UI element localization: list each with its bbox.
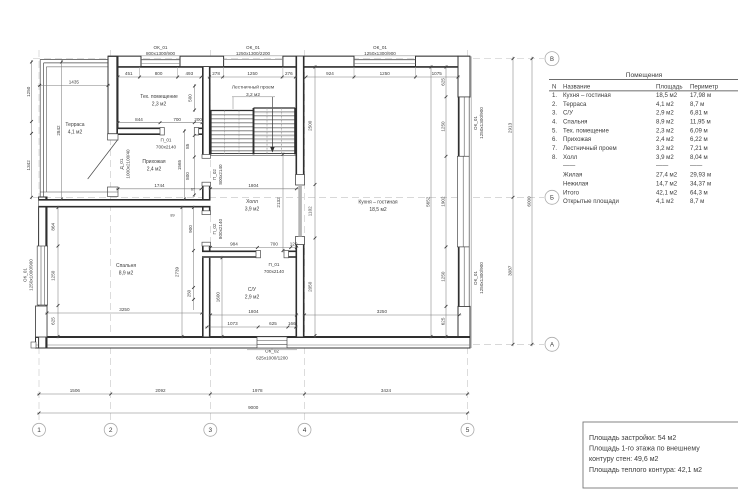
svg-text:Холл: Холл bbox=[563, 154, 578, 161]
svg-text:3: 3 bbox=[208, 427, 212, 434]
svg-text:1073: 1073 bbox=[227, 321, 238, 326]
svg-text:ОК_01: ОК_01 bbox=[154, 45, 168, 50]
svg-text:89: 89 bbox=[170, 214, 174, 218]
svg-text:Открытые площади: Открытые площади bbox=[563, 198, 619, 205]
svg-text:1250х1000/900: 1250х1000/900 bbox=[29, 259, 34, 291]
svg-text:6,81 м: 6,81 м bbox=[690, 110, 708, 117]
svg-text:900: 900 bbox=[188, 225, 193, 233]
svg-text:1250: 1250 bbox=[440, 121, 445, 132]
svg-text:250: 250 bbox=[187, 289, 192, 297]
svg-text:2132: 2132 bbox=[276, 197, 281, 208]
svg-text:1804: 1804 bbox=[248, 183, 259, 188]
svg-text:4,1 м2: 4,1 м2 bbox=[68, 130, 83, 136]
svg-text:Прихожая: Прихожая bbox=[142, 159, 165, 165]
svg-text:1902: 1902 bbox=[440, 196, 445, 207]
svg-text:2,3 м2: 2,3 м2 bbox=[152, 102, 167, 108]
svg-text:3,2 м2: 3,2 м2 bbox=[246, 92, 260, 98]
svg-text:контуру стен: 49,6 м2: контуру стен: 49,6 м2 bbox=[589, 456, 659, 463]
svg-text:2,3 м2: 2,3 м2 bbox=[656, 127, 674, 134]
svg-text:В: В bbox=[550, 57, 554, 63]
svg-text:2913: 2913 bbox=[507, 122, 512, 133]
svg-text:5.: 5. bbox=[552, 127, 557, 134]
svg-text:34,37 м: 34,37 м bbox=[690, 180, 711, 187]
svg-text:166: 166 bbox=[288, 321, 296, 326]
svg-text:8,7 м: 8,7 м bbox=[690, 101, 704, 108]
svg-text:——: —— bbox=[690, 163, 703, 170]
svg-text:Площадь: Площадь bbox=[656, 84, 683, 91]
svg-text:Прихожая: Прихожая bbox=[563, 136, 591, 143]
svg-text:7,21 м: 7,21 м bbox=[690, 145, 708, 152]
svg-text:800: 800 bbox=[185, 172, 190, 180]
svg-text:1435: 1435 bbox=[69, 80, 80, 85]
svg-text:3,2 м2: 3,2 м2 bbox=[656, 145, 674, 152]
svg-text:1250х1300/2200: 1250х1300/2200 bbox=[236, 51, 271, 56]
svg-text:ОК_01: ОК_01 bbox=[373, 45, 387, 50]
svg-text:17,98 м: 17,98 м bbox=[690, 92, 711, 99]
svg-text:Лестничный проем: Лестничный проем bbox=[563, 145, 617, 152]
svg-text:64,3 м: 64,3 м bbox=[690, 189, 708, 196]
svg-text:6,09 м: 6,09 м bbox=[690, 127, 708, 134]
svg-text:4: 4 bbox=[303, 427, 307, 434]
svg-text:18,5 м2: 18,5 м2 bbox=[369, 207, 387, 213]
svg-text:6.: 6. bbox=[552, 136, 557, 143]
svg-text:1506: 1506 bbox=[70, 388, 81, 393]
svg-text:1744: 1744 bbox=[154, 183, 165, 188]
svg-text:П_02: П_02 bbox=[212, 223, 217, 234]
svg-text:С/У: С/У bbox=[563, 110, 573, 117]
svg-text:625: 625 bbox=[269, 321, 277, 326]
svg-text:800х2140: 800х2140 bbox=[218, 164, 223, 185]
svg-text:Тех. помещение: Тех. помещение bbox=[563, 127, 609, 134]
svg-text:1565: 1565 bbox=[177, 159, 182, 170]
svg-text:493: 493 bbox=[185, 71, 193, 76]
svg-text:Спальня: Спальня bbox=[116, 263, 136, 269]
svg-text:Площадь 1-го этажа по внешнему: Площадь 1-го этажа по внешнему bbox=[589, 446, 700, 453]
svg-text:8,7 м: 8,7 м bbox=[690, 198, 704, 205]
svg-text:1342: 1342 bbox=[26, 160, 31, 171]
svg-text:2092: 2092 bbox=[155, 388, 166, 393]
svg-text:2739: 2739 bbox=[175, 266, 180, 277]
svg-text:8,9 м2: 8,9 м2 bbox=[119, 271, 134, 277]
svg-text:8.: 8. bbox=[552, 154, 557, 161]
svg-text:1250: 1250 bbox=[440, 271, 445, 282]
svg-text:——: —— bbox=[563, 163, 576, 170]
svg-text:800х1300/900: 800х1300/900 bbox=[146, 51, 176, 56]
svg-text:1250х1300/900: 1250х1300/900 bbox=[364, 51, 396, 56]
svg-text:Кухня – гостиная: Кухня – гостиная bbox=[358, 200, 398, 206]
svg-text:2050: 2050 bbox=[308, 281, 313, 292]
svg-text:625: 625 bbox=[440, 317, 445, 325]
svg-text:Нежилая: Нежилая bbox=[563, 180, 588, 187]
svg-text:N: N bbox=[552, 84, 556, 91]
svg-text:Помещения: Помещения bbox=[626, 72, 663, 79]
svg-text:924: 924 bbox=[326, 71, 334, 76]
svg-text:Периметр: Периметр bbox=[690, 84, 719, 91]
svg-text:Лестничный проем: Лестничный проем bbox=[232, 84, 274, 91]
svg-text:Жилая: Жилая bbox=[563, 172, 582, 179]
svg-text:1000х2100/40: 1000х2100/40 bbox=[126, 149, 131, 179]
svg-text:8,9 м2: 8,9 м2 bbox=[656, 118, 674, 125]
svg-text:2500: 2500 bbox=[308, 120, 313, 131]
svg-text:П_01: П_01 bbox=[161, 138, 172, 143]
svg-text:8,04 м: 8,04 м bbox=[690, 154, 708, 161]
svg-text:П_02: П_02 bbox=[212, 169, 217, 180]
svg-text:2,9 м2: 2,9 м2 bbox=[656, 110, 674, 117]
svg-text:18,5 м2: 18,5 м2 bbox=[656, 92, 678, 99]
svg-text:Тех. помещение: Тех. помещение bbox=[140, 94, 178, 100]
svg-text:625: 625 bbox=[440, 78, 445, 86]
svg-text:П_01: П_01 bbox=[269, 262, 280, 267]
svg-text:2: 2 bbox=[109, 427, 113, 434]
svg-text:278: 278 bbox=[212, 71, 220, 76]
svg-text:ОК_01: ОК_01 bbox=[473, 271, 478, 285]
svg-text:700х2140: 700х2140 bbox=[264, 269, 285, 274]
svg-text:1102: 1102 bbox=[308, 206, 313, 216]
svg-text:3424: 3424 bbox=[381, 388, 392, 393]
svg-text:ОК_01: ОК_01 bbox=[246, 45, 260, 50]
svg-text:Терраса: Терраса bbox=[65, 122, 84, 128]
svg-text:4,1 м2: 4,1 м2 bbox=[656, 101, 674, 108]
svg-text:Спальня: Спальня bbox=[563, 118, 588, 125]
svg-text:1075: 1075 bbox=[432, 71, 443, 76]
svg-text:276: 276 bbox=[285, 71, 293, 76]
svg-text:1250: 1250 bbox=[380, 71, 391, 76]
svg-text:3.: 3. bbox=[552, 110, 557, 117]
svg-text:1600: 1600 bbox=[216, 292, 221, 303]
svg-text:700: 700 bbox=[270, 242, 278, 247]
svg-text:Терраса: Терраса bbox=[563, 101, 587, 108]
svg-text:85: 85 bbox=[185, 143, 190, 149]
svg-text:1250: 1250 bbox=[26, 86, 31, 97]
svg-text:3250: 3250 bbox=[119, 307, 130, 312]
svg-text:844: 844 bbox=[135, 117, 143, 122]
svg-text:Площадь застройки: 54 м2: Площадь застройки: 54 м2 bbox=[589, 434, 676, 442]
svg-text:7.: 7. bbox=[552, 145, 557, 152]
svg-text:984: 984 bbox=[230, 242, 238, 247]
svg-text:625: 625 bbox=[51, 317, 56, 325]
svg-text:ОК_01: ОК_01 bbox=[23, 268, 28, 282]
svg-text:120: 120 bbox=[290, 242, 298, 247]
svg-text:2,4 м2: 2,4 м2 bbox=[656, 136, 674, 143]
svg-text:1: 1 bbox=[37, 427, 41, 434]
svg-text:2,4 м2: 2,4 м2 bbox=[147, 167, 162, 173]
svg-text:1250: 1250 bbox=[51, 270, 56, 281]
svg-text:Площадь теплого контура: 42,1: Площадь теплого контура: 42,1 м2 bbox=[589, 467, 702, 474]
svg-text:9000: 9000 bbox=[248, 405, 259, 410]
svg-text:800: 800 bbox=[155, 71, 163, 76]
svg-text:27,4 м2: 27,4 м2 bbox=[656, 172, 678, 179]
svg-text:1250х1300/900: 1250х1300/900 bbox=[479, 262, 484, 294]
svg-text:5: 5 bbox=[466, 427, 470, 434]
svg-text:Кухня – гостиная: Кухня – гостиная bbox=[563, 92, 611, 99]
svg-text:29,93 м: 29,93 м bbox=[690, 172, 711, 179]
svg-text:11,95 м: 11,95 м bbox=[690, 118, 711, 125]
svg-text:1978: 1978 bbox=[252, 388, 263, 393]
svg-text:3,9 м2: 3,9 м2 bbox=[656, 154, 674, 161]
svg-text:6000: 6000 bbox=[526, 196, 531, 207]
svg-text:2,9 м2: 2,9 м2 bbox=[245, 295, 260, 301]
svg-text:3250: 3250 bbox=[377, 309, 388, 314]
svg-text:1250: 1250 bbox=[247, 71, 258, 76]
svg-text:4.: 4. bbox=[552, 118, 557, 125]
svg-text:Д_01: Д_01 bbox=[119, 158, 124, 169]
svg-text:3087: 3087 bbox=[507, 265, 512, 276]
svg-text:4,1 м2: 4,1 м2 bbox=[656, 198, 674, 205]
svg-text:864: 864 bbox=[51, 222, 56, 230]
svg-text:700х2140: 700х2140 bbox=[156, 145, 177, 150]
svg-text:2842: 2842 bbox=[56, 125, 61, 136]
svg-text:С/У: С/У bbox=[248, 287, 257, 293]
svg-text:6,22 м: 6,22 м bbox=[690, 136, 708, 143]
svg-text:Название: Название bbox=[563, 84, 591, 91]
svg-text:625х1000/1200: 625х1000/1200 bbox=[256, 356, 288, 361]
svg-text:1.: 1. bbox=[552, 92, 557, 99]
svg-text:3,9 м2: 3,9 м2 bbox=[245, 207, 260, 213]
svg-text:Итого: Итого bbox=[563, 189, 580, 196]
svg-text:А: А bbox=[550, 343, 554, 349]
svg-text:——: —— bbox=[656, 163, 669, 170]
svg-text:Холл: Холл bbox=[246, 199, 258, 205]
svg-text:1804: 1804 bbox=[248, 309, 259, 314]
svg-text:14,7 м2: 14,7 м2 bbox=[656, 180, 678, 187]
svg-text:42,1 м2: 42,1 м2 bbox=[656, 189, 678, 196]
svg-text:500: 500 bbox=[188, 94, 193, 102]
svg-text:2.: 2. bbox=[552, 101, 557, 108]
svg-text:700: 700 bbox=[173, 117, 181, 122]
svg-text:200: 200 bbox=[194, 117, 202, 122]
svg-text:5652: 5652 bbox=[425, 196, 430, 207]
svg-text:451: 451 bbox=[125, 71, 133, 76]
svg-text:Б: Б bbox=[550, 196, 554, 202]
svg-text:1250х1300/900: 1250х1300/900 bbox=[479, 107, 484, 139]
svg-text:ОК_01: ОК_01 bbox=[473, 116, 478, 130]
svg-text:800х2140: 800х2140 bbox=[218, 218, 223, 239]
